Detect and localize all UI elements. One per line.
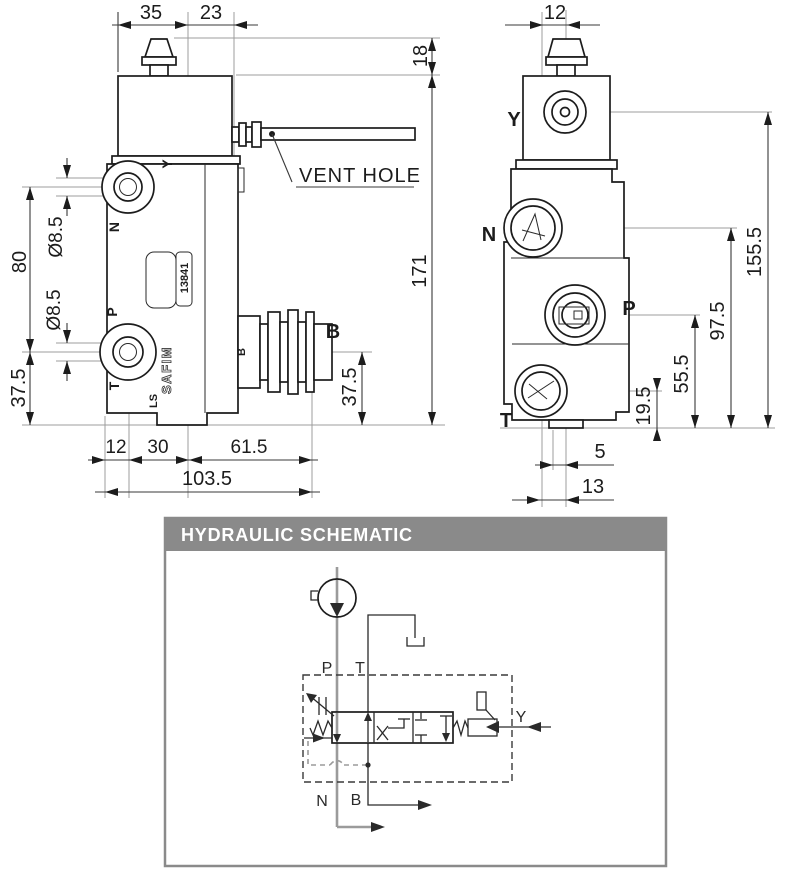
dim-80: 80 <box>9 251 31 273</box>
front-y-port <box>102 161 154 213</box>
dim-dia-p: Ø8.5 <box>44 289 65 330</box>
dim-155-5: 155.5 <box>744 227 766 277</box>
side-t-port <box>515 365 567 417</box>
dim-side-12: 12 <box>544 2 566 24</box>
schematic-panel-frame <box>165 518 666 866</box>
dim-18: 18 <box>410 45 432 67</box>
schematic-panel: HYDRAULIC SCHEMATIC <box>165 518 666 866</box>
vent-hole-label: VENT HOLE <box>299 165 421 187</box>
front-solenoid-body <box>118 76 232 156</box>
b-coupler <box>238 310 332 394</box>
side-label-t: T <box>500 410 512 432</box>
dim-12: 12 <box>105 437 126 458</box>
dim-61-5: 61.5 <box>231 437 268 458</box>
side-label-p: P <box>622 298 635 320</box>
side-n-port <box>504 199 562 257</box>
schematic-label-p: P <box>322 660 333 677</box>
dim-37-5-left: 37.5 <box>8 369 30 408</box>
schematic-label-b: B <box>351 792 362 809</box>
front-label-p: P <box>104 307 120 316</box>
front-label-t: T <box>106 381 122 390</box>
front-view: Y N P T B LS SAFIM 13841 B VENT HOLE 35 <box>8 2 445 498</box>
schematic-label-y: Y <box>516 709 527 726</box>
front-p-port <box>100 324 156 380</box>
dim-97-5: 97.5 <box>707 302 729 341</box>
marking-brand: SAFIM <box>159 346 174 394</box>
front-label-n: N <box>106 222 122 232</box>
front-label-b-callout: B <box>326 321 340 343</box>
dim-5: 5 <box>594 441 605 463</box>
dim-37-5-b: 37.5 <box>339 368 361 407</box>
front-view-body <box>100 39 415 425</box>
dim-55-5: 55.5 <box>671 355 693 394</box>
side-label-n: N <box>482 224 496 246</box>
dim-23: 23 <box>200 2 222 24</box>
front-knob-cap <box>145 39 173 57</box>
schematic-label-t: T <box>355 660 365 677</box>
dim-13: 13 <box>582 476 604 498</box>
front-label-y: Y <box>159 159 175 169</box>
marking-code: 13841 <box>179 263 191 294</box>
dim-19-5: 19.5 <box>633 387 655 426</box>
side-view: Y N P T 12 155.5 97.5 55.5 <box>482 2 775 507</box>
side-label-y: Y <box>507 109 521 131</box>
side-y-port <box>544 91 586 133</box>
side-view-body <box>504 39 629 428</box>
dim-35: 35 <box>140 2 162 24</box>
dim-dia-y: Ø8.5 <box>46 216 67 257</box>
front-label-b-small: B <box>236 348 248 356</box>
dim-103-5: 103.5 <box>182 468 232 490</box>
side-p-port <box>545 285 605 345</box>
schematic-title: HYDRAULIC SCHEMATIC <box>181 525 413 545</box>
marking-ls: LS <box>148 394 160 408</box>
schematic-label-n: N <box>316 793 328 810</box>
side-knob-cap <box>548 39 585 57</box>
valve-symbol <box>332 712 453 743</box>
dim-30: 30 <box>147 437 168 458</box>
dim-171: 171 <box>409 254 431 287</box>
vent-rod <box>232 122 415 147</box>
technical-drawing-page: Y N P T B LS SAFIM 13841 B VENT HOLE 35 <box>0 0 790 874</box>
